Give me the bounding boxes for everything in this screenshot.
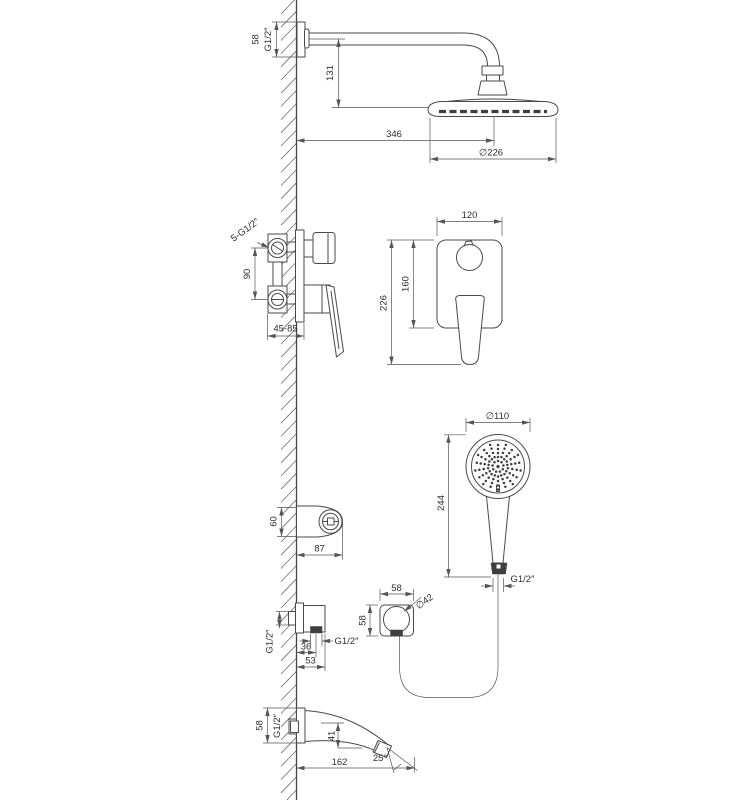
dim-arm-drop-label: 131: [325, 65, 336, 81]
shower-system-technical-drawing: 58 G1/2″ 131 346 ∅226: [0, 0, 731, 800]
diverter-stem: [304, 240, 313, 257]
dim-arm-reach-label: 346: [386, 129, 402, 140]
dim-handshower-diameter-label: ∅110: [486, 411, 509, 422]
dim-handshower-thread-label: G1/2″: [511, 574, 536, 585]
lever-front: [456, 296, 485, 365]
dim-outlet-height-label: 58: [358, 615, 369, 626]
hand-shower-view: ∅110 244 G1/2″: [400, 411, 536, 698]
dim-arm-thread-label: G1/2″: [263, 27, 274, 52]
outlet-wall-plate: [296, 603, 304, 633]
dim-spout-drop-label: 41: [327, 731, 338, 742]
arm-nut: [482, 66, 503, 75]
head-cone-joint: [478, 81, 507, 95]
dim-total-height-label: 226: [379, 295, 390, 311]
bath-spout-view: 58 G1/2″ 41 162 25°: [255, 708, 418, 773]
mixer-front-view: 120 160 226: [379, 210, 503, 365]
dim-plate-height-label: 160: [401, 276, 412, 292]
dim-head-diameter-label: ∅226: [479, 148, 503, 159]
shower-hose: [400, 574, 499, 698]
arm-wall-flange: [297, 22, 305, 57]
dim-outlet-hole-label: ∅42: [414, 592, 436, 612]
hand-shower-handle: [486, 492, 510, 563]
wall-hatching: [281, 0, 297, 800]
dim-outlet-offset-label: 36: [301, 642, 312, 653]
dim-outlet-depth-label: 53: [305, 656, 316, 667]
outlet-nipple: [311, 627, 323, 634]
dim-install-depth-label: 45-85: [273, 324, 297, 335]
arm-flange-cap: [305, 29, 310, 48]
diverter-knob-front: [457, 245, 483, 271]
dim-spout-reach-label: 162: [332, 757, 348, 768]
dim-spout-angle-label: 25°: [373, 753, 388, 764]
dim-outlet-width-label: 58: [391, 583, 402, 594]
shower-holder-view: 60 87: [269, 506, 343, 560]
technical-drawing-page: 58 G1/2″ 131 346 ∅226: [0, 0, 731, 800]
dim-connections-thread-label: 5-G1/2″: [229, 216, 262, 244]
mixer-side-view: 5-G1/2″ 90 45-85: [229, 216, 344, 357]
dim-holder-height-label: 60: [269, 516, 280, 527]
outlet-elbow-front-view: 58 58 ∅42: [358, 583, 436, 636]
shower-head: [428, 102, 558, 117]
dim-holder-reach-label: 87: [314, 544, 325, 555]
dim-handshower-length-label: 244: [436, 495, 447, 511]
diverter-knob-side: [313, 233, 335, 264]
lever-hub-side: [304, 285, 330, 313]
dim-outlet-inlet-thread-label: G1/2″: [265, 629, 276, 654]
outlet-elbow-side-view: G1/2″ G1/2″ 36 53: [265, 603, 360, 671]
dim-spout-plate-label: 58: [255, 720, 266, 731]
dim-outlet-thread-label: G1/2″: [335, 636, 360, 647]
mixer-wall-plate-side: [296, 230, 305, 322]
dim-arm-plate-label: 58: [251, 34, 262, 45]
dim-spout-thread-label: G1/2″: [272, 713, 283, 738]
dim-plate-width-label: 120: [462, 210, 478, 221]
dim-port-spacing-label: 90: [242, 269, 253, 280]
